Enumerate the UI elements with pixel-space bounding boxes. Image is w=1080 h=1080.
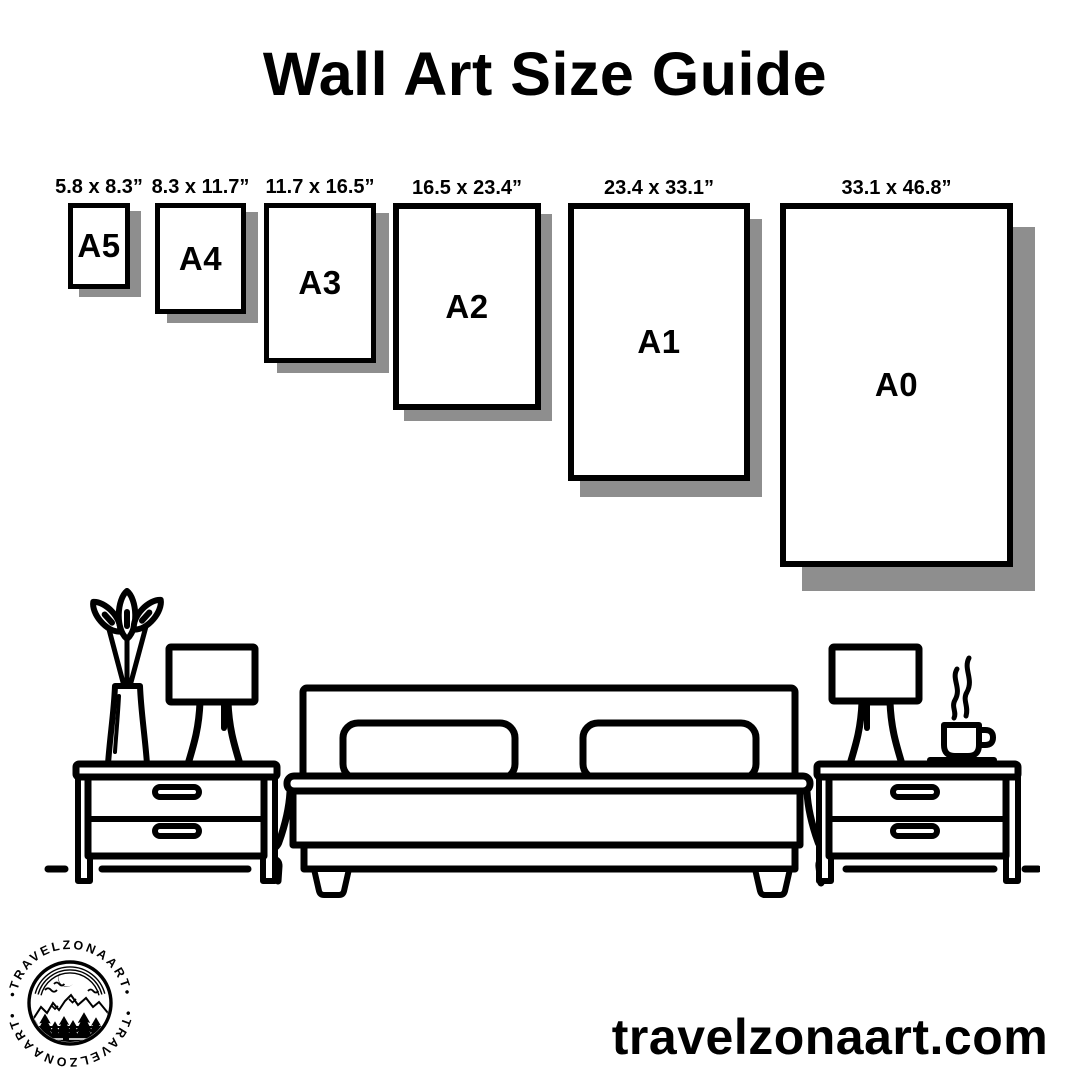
drawer-handle [893,826,937,836]
website-url: travelzonaart.com [612,1008,1048,1066]
page-title: Wall Art Size Guide [10,44,1080,105]
size-frame-a0: 33.1 x 46.8” A0 [780,203,1013,567]
lamp-shade [832,647,919,701]
size-frame-a1: 23.4 x 33.1” A1 [568,203,750,481]
steam-icon [954,669,958,718]
drawer-handle [155,787,199,797]
lamp-shade [169,647,255,702]
bed-foot-left [314,869,349,895]
table-lamp-right-icon [832,647,919,764]
size-code-a0: A0 [875,366,918,404]
size-guide-poster: Wall Art Size Guide 5.8 x 8.3” A5 8.3 x … [0,0,1080,1080]
coffee-cup-icon [930,658,994,760]
tabletop [817,764,1018,777]
pillow-right [583,723,756,779]
size-dimensions-a0: 33.1 x 46.8” [841,177,951,200]
size-code-a2: A2 [445,288,488,326]
drawer-handle [893,787,937,797]
size-code-a1: A1 [637,323,680,361]
brand-logo: •TRAVELZONAART• •TRAVELZONAART• [8,933,132,1067]
size-dimensions-a1: 23.4 x 33.1” [604,177,714,200]
size-frame-a4: 8.3 x 11.7” A4 [155,203,246,314]
size-code-a5: A5 [77,227,120,265]
nightstand-left-icon [76,764,277,881]
bed-icon [272,688,826,895]
steam-icon [965,658,969,716]
flower-vase-icon [88,591,167,764]
tabletop [76,764,277,777]
drawer-handle [155,826,199,836]
size-code-a3: A3 [298,264,341,302]
mattress [293,791,800,845]
size-dimensions-a4: 8.3 x 11.7” [152,176,250,199]
lamp-base [188,702,240,764]
size-frame-a3: 11.7 x 16.5” A3 [264,203,376,363]
size-dimensions-a2: 16.5 x 23.4” [412,177,522,200]
table-lamp-left-icon [169,647,255,764]
size-code-a4: A4 [179,240,222,278]
bedroom-illustration [40,588,1040,900]
cup-body [944,725,979,756]
size-frame-a5: 5.8 x 8.3” A5 [68,203,130,289]
size-dimensions-a3: 11.7 x 16.5” [266,176,375,199]
bed-foot-right [755,869,790,895]
nightstand-right-icon [817,764,1018,881]
size-frame-a2: 16.5 x 23.4” A2 [393,203,541,410]
size-dimensions-a5: 5.8 x 8.3” [55,176,143,199]
pillow-left [343,723,515,779]
bed-base [304,845,795,869]
lamp-base [850,702,902,764]
